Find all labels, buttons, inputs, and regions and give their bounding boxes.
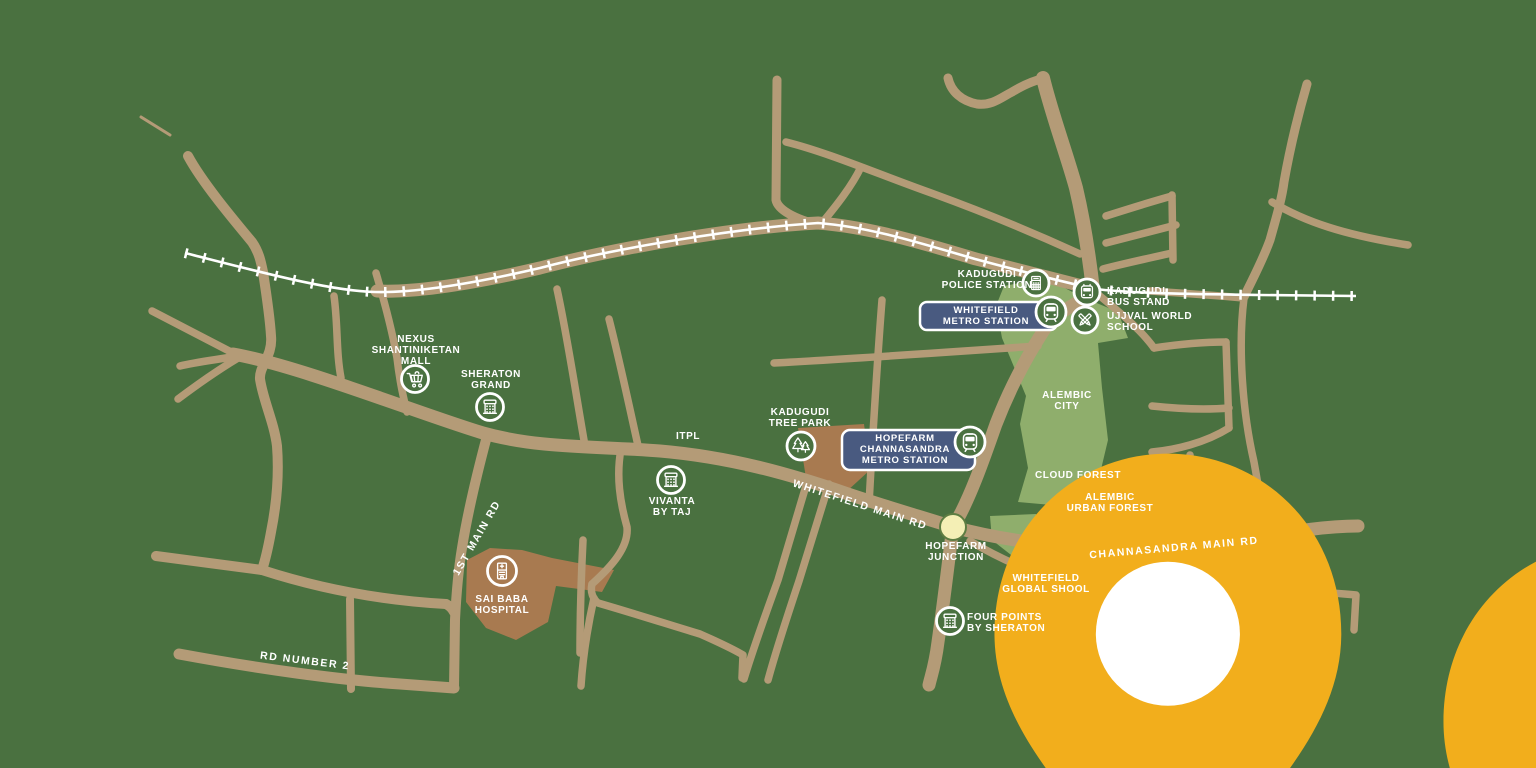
four-points-hotel-icon <box>937 608 964 635</box>
railway-rail <box>185 223 1356 296</box>
hopefarm-metro-icon <box>955 427 985 457</box>
railway-ticks <box>185 223 1356 296</box>
sheraton-hotel-icon <box>477 394 504 421</box>
location-map: NEXUS SHANTINIKETAN MALL SHERATON GRAND … <box>0 0 1536 768</box>
alembic-urban-forest-pin <box>1443 542 1536 768</box>
whitefield-metro-icon <box>1036 297 1066 327</box>
police-station-icon <box>1023 270 1049 296</box>
junction-south-road <box>929 525 953 685</box>
kadugudi-main-road <box>1043 78 1093 290</box>
railway-line <box>185 223 1356 296</box>
tree-park-icon <box>787 432 815 460</box>
map-pins <box>994 454 1536 768</box>
mall-icon <box>402 366 429 393</box>
bus-stand-icon <box>1074 279 1100 305</box>
ujjval-school-icon <box>1072 307 1098 333</box>
map-canvas <box>0 0 1536 768</box>
hospital-icon <box>488 557 517 586</box>
road-number-2 <box>179 654 454 688</box>
hopefarm-junction-dot <box>940 514 966 540</box>
vivanta-hotel-icon <box>658 467 685 494</box>
